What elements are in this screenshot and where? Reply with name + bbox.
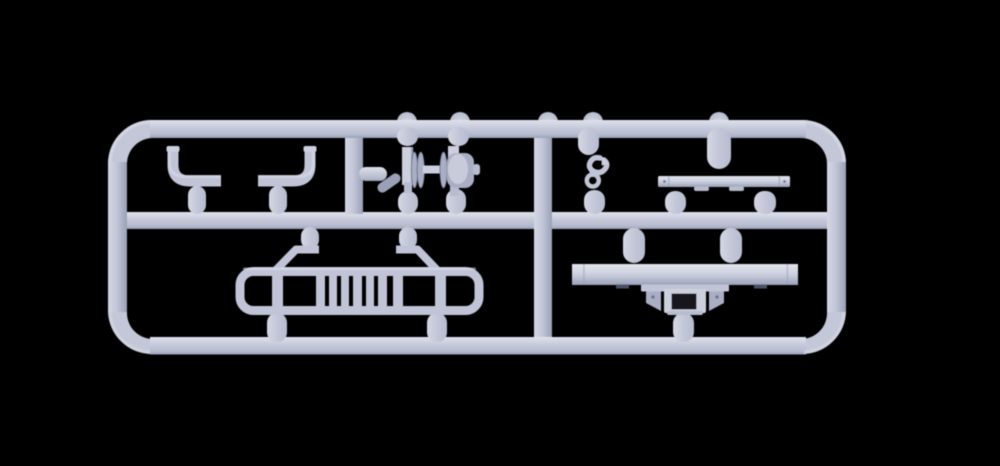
strip-hole — [783, 180, 786, 183]
axle-feed-gate — [359, 167, 387, 181]
coupling-wing-left — [646, 292, 661, 312]
coupling-hole — [715, 295, 718, 298]
strip-foot — [729, 187, 744, 192]
coupling-hole — [651, 295, 654, 298]
sprue-gate — [578, 128, 599, 155]
wheel-axle-assembly — [359, 146, 480, 196]
sprue-photo-scene — [0, 0, 1000, 466]
sprue-gate — [623, 228, 645, 263]
divider-right — [534, 136, 552, 341]
right-rail — [827, 162, 846, 312]
running-board-ribs — [272, 273, 446, 309]
sprue-gate — [754, 191, 776, 214]
running-board-arm-right — [396, 250, 437, 271]
sprue-gate — [448, 127, 469, 146]
sprue-gate — [673, 313, 694, 342]
mounting-strip — [658, 176, 790, 191]
sprue-gate — [397, 127, 418, 146]
axle-shaft — [423, 166, 441, 174]
sprue-gate — [427, 313, 447, 342]
sprue-gate — [665, 191, 686, 214]
mudguard-bracket-left — [167, 146, 222, 181]
sprue-gate — [188, 186, 206, 214]
strip-hole — [663, 180, 666, 183]
sprue-frame-group — [108, 112, 846, 355]
bumper-tab — [754, 285, 767, 289]
sprue-gate — [398, 191, 418, 214]
sprue-gate — [720, 228, 742, 263]
strip-foot — [694, 187, 709, 192]
wheel-flange — [411, 152, 417, 188]
hook-eye — [587, 175, 599, 187]
coupling-base — [667, 311, 703, 315]
housing-face — [448, 154, 468, 184]
sprue-render — [0, 0, 1000, 466]
sprue-gate — [707, 128, 731, 169]
mudguard-bracket-right — [258, 146, 317, 181]
mid-rail — [120, 212, 834, 229]
bumper-tab — [616, 285, 629, 289]
coupling-opening — [672, 294, 697, 310]
running-board-highlight — [243, 268, 476, 271]
wheel-flange — [440, 152, 447, 188]
running-board-arm-left — [276, 250, 319, 271]
sprue-gate — [267, 313, 287, 342]
housing-nub — [473, 164, 480, 175]
left-rail — [108, 162, 127, 312]
sprue-gate — [269, 186, 287, 214]
axle-bracket-foot — [404, 182, 412, 193]
bottom-rail — [150, 337, 806, 355]
running-board-frame — [240, 250, 479, 311]
tow-hook-s-shape — [587, 157, 609, 187]
sprue-gate — [584, 190, 605, 214]
tow-coupling-bracket — [641, 285, 729, 316]
coupling-wing-right — [709, 292, 724, 312]
top-rail — [150, 120, 806, 138]
